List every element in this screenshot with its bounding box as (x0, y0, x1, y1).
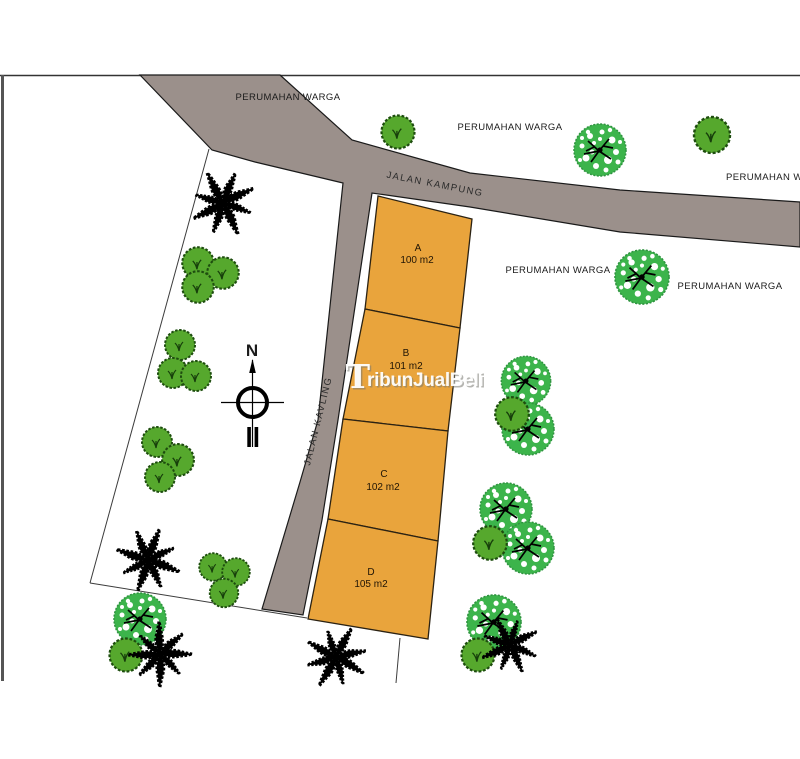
area-label-perumahan-warga-5: PERUMAHAN WARGA (678, 281, 783, 292)
bush-icon (182, 271, 214, 303)
site-plan-image: N PERUMAHAN WARGA PERUMAHAN WARGA PERUMA… (0, 0, 800, 759)
plot-A-area: 100 m2 (400, 255, 434, 266)
roads-shape (140, 75, 800, 615)
area-label-perumahan-warga-4: PERUMAHAN WARGA (506, 265, 611, 276)
bush-icon (495, 397, 529, 431)
bush-icon (694, 117, 730, 153)
bush-icon (382, 116, 415, 149)
north-label: N (246, 341, 258, 360)
compass-south-bar-icon (247, 427, 251, 447)
watermark-rest: ribunJualBeli (367, 370, 483, 391)
palm-tree-icon (187, 165, 260, 241)
bush-icon (210, 579, 239, 608)
speckled-tree-icon (615, 250, 669, 304)
north-compass: N (221, 341, 284, 447)
plot-C-area: 102 m2 (366, 482, 400, 493)
area-label-perumahan-warga-3: PERUMAHAN WARGA (726, 172, 800, 183)
area-label-perumahan-warga-2: PERUMAHAN WARGA (458, 122, 563, 133)
plot-B-name: B (403, 348, 410, 359)
plot-D-area: 105 m2 (354, 579, 388, 590)
compass-arrowhead-icon (249, 359, 256, 373)
bush-icon (181, 361, 211, 391)
bush-icon (473, 526, 507, 560)
area-label-perumahan-warga-1: PERUMAHAN WARGA (236, 92, 341, 103)
bush-icon (165, 330, 195, 360)
compass-south-bar-icon (255, 427, 259, 447)
plot-A-name: A (415, 243, 422, 254)
palm-tree-icon (298, 620, 375, 694)
speckled-tree-icon (574, 124, 626, 176)
site-plan-svg: N PERUMAHAN WARGA PERUMAHAN WARGA PERUMA… (0, 0, 800, 759)
plot-D-name: D (367, 567, 374, 578)
speckled-tree-icon (502, 522, 554, 574)
plot-C-name: C (380, 469, 387, 480)
bush-icon (145, 462, 175, 492)
